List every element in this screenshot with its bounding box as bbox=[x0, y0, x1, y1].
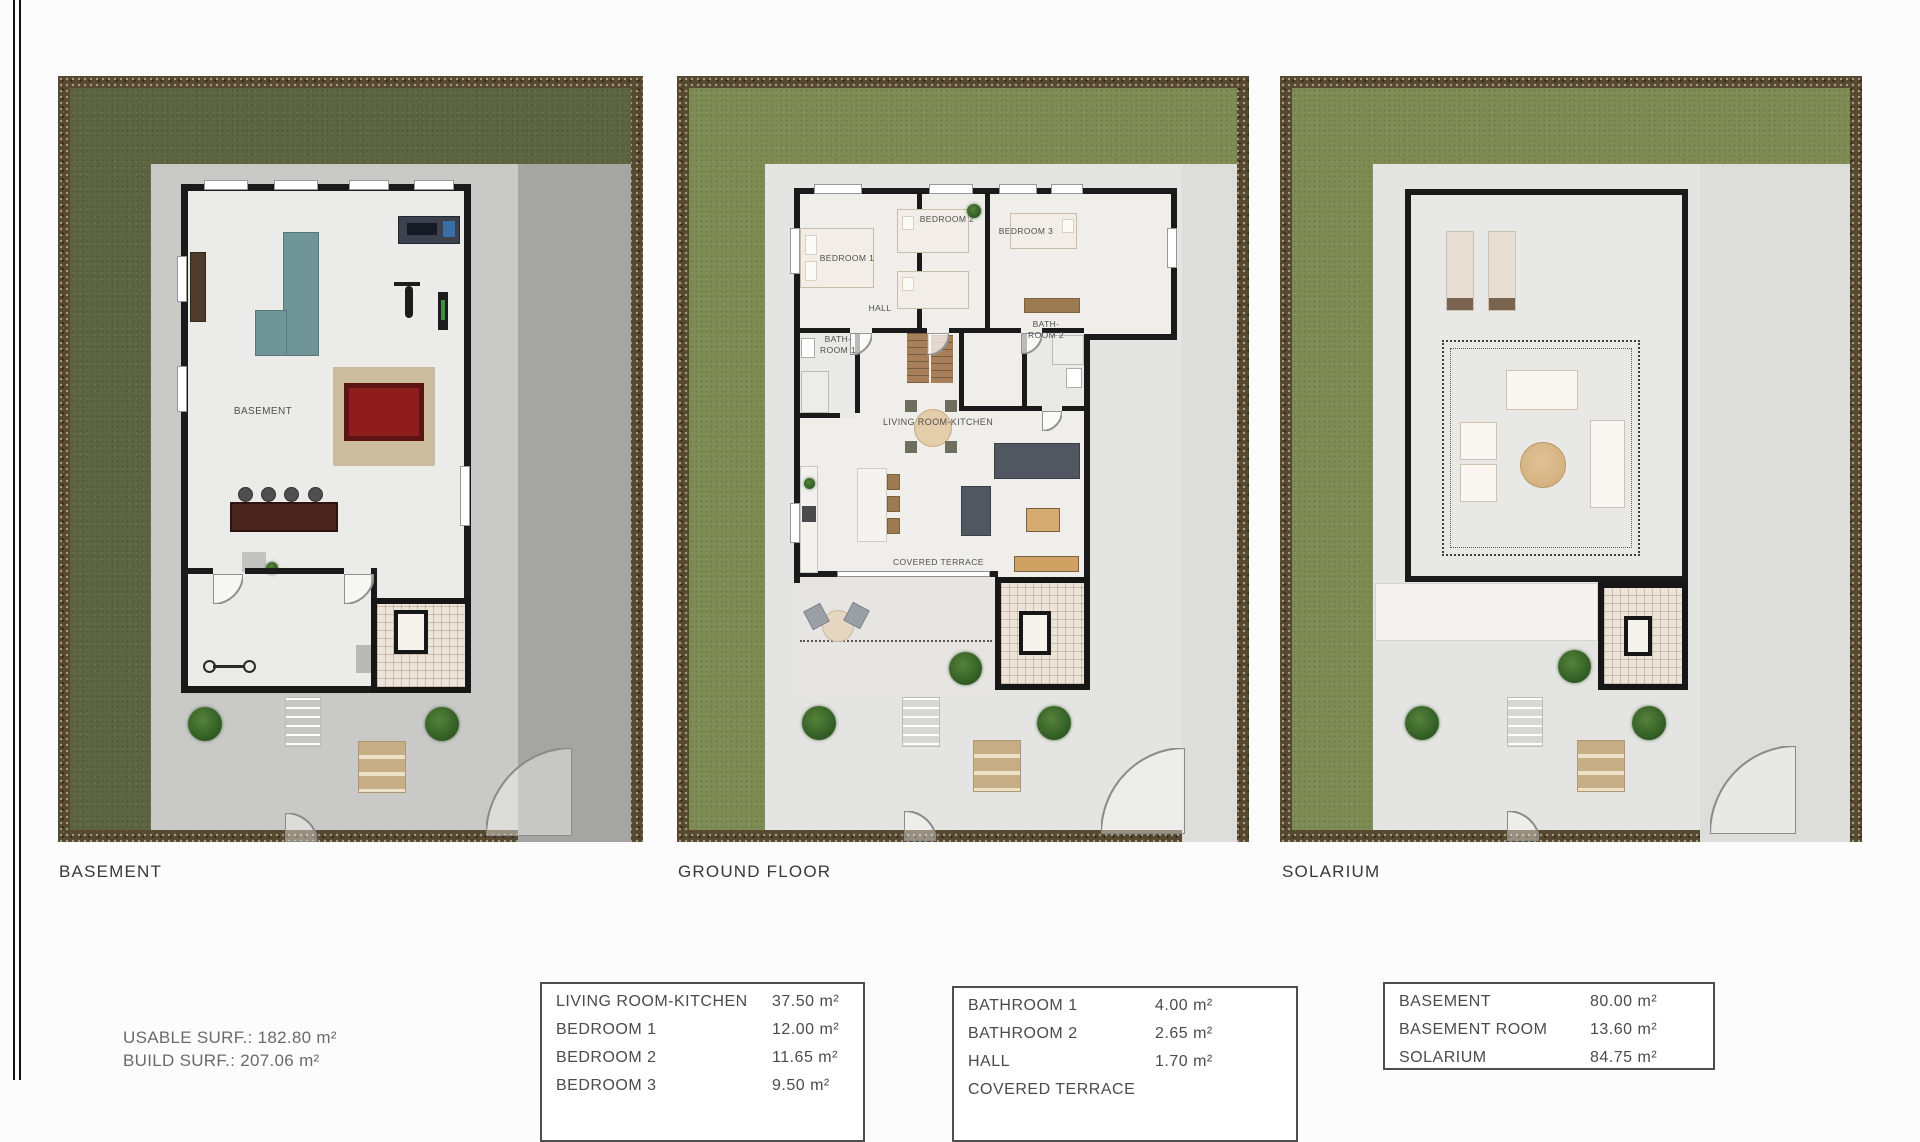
bar-stool bbox=[238, 487, 253, 502]
exterior-stairs bbox=[285, 697, 321, 747]
bush bbox=[188, 707, 222, 741]
interior-wall bbox=[1062, 406, 1084, 411]
room-label: COVERED TERRACE bbox=[968, 1081, 1135, 1098]
sun-lounger bbox=[1488, 231, 1516, 311]
exercise-bike bbox=[394, 280, 424, 324]
room-label-bedroom1: BEDROOM 1 bbox=[812, 253, 882, 264]
page-border-lines bbox=[13, 0, 21, 1080]
area-table-rooms: LIVING ROOM-KITCHEN37.50 m² BEDROOM 112.… bbox=[540, 982, 865, 1142]
door-arc bbox=[213, 574, 243, 604]
corner-sofa bbox=[283, 232, 319, 356]
table-row: HALL1.70 m² bbox=[954, 1048, 1296, 1076]
area-table-baths-hall: BATHROOM 14.00 m² BATHROOM 22.65 m² HALL… bbox=[952, 986, 1298, 1142]
floor-plan-solarium bbox=[1280, 76, 1862, 842]
plan-title-basement: BASEMENT bbox=[59, 862, 162, 882]
bar-counter bbox=[230, 502, 338, 532]
driveway-area bbox=[518, 164, 631, 842]
room-label-line: BATH- bbox=[1033, 319, 1060, 329]
gate-door-arc bbox=[1710, 746, 1796, 834]
stool bbox=[887, 474, 900, 490]
lounger-foot bbox=[1489, 298, 1515, 310]
pool-table bbox=[344, 383, 424, 441]
interior-wall bbox=[181, 568, 213, 574]
pedestrian-door-arc bbox=[1507, 811, 1539, 841]
bush bbox=[425, 707, 459, 741]
table-row: BASEMENT80.00 m² bbox=[1385, 988, 1713, 1016]
window bbox=[790, 503, 800, 543]
room-label-hall: HALL bbox=[862, 303, 898, 314]
surface-summary: USABLE SURF.: 182.80 m² BUILD SURF.: 207… bbox=[123, 1026, 337, 1072]
outdoor-armchair bbox=[1460, 464, 1497, 502]
room-label: LIVING ROOM-KITCHEN bbox=[556, 993, 748, 1010]
room-area-value: 2.65 m² bbox=[1155, 1020, 1213, 1048]
room-area-value: 84.75 m² bbox=[1590, 1044, 1657, 1070]
sliding-glass-door bbox=[837, 571, 990, 577]
window bbox=[929, 184, 973, 194]
room-label-basement: BASEMENT bbox=[208, 405, 318, 418]
room-label-terrace: COVERED TERRACE bbox=[893, 557, 983, 568]
bush bbox=[949, 652, 982, 685]
room-label-living: LIVING ROOM-KITCHEN bbox=[883, 417, 993, 429]
stool bbox=[887, 496, 900, 512]
stair-flight bbox=[907, 333, 929, 383]
table-row: BASEMENT ROOM13.60 m² bbox=[1385, 1016, 1713, 1044]
bike-body bbox=[405, 286, 413, 318]
bush bbox=[1037, 706, 1071, 740]
window bbox=[814, 184, 862, 194]
canopy-roof bbox=[1375, 583, 1598, 641]
build-surface-label: BUILD SURF.: bbox=[123, 1051, 235, 1070]
room-label: BASEMENT bbox=[1399, 993, 1491, 1010]
bush bbox=[802, 706, 836, 740]
door-arc bbox=[344, 574, 374, 604]
window bbox=[1167, 228, 1177, 268]
plan-title-solarium: SOLARIUM bbox=[1282, 862, 1380, 882]
pedestrian-door-arc bbox=[285, 813, 317, 842]
usable-surface-line: USABLE SURF.: 182.80 m² bbox=[123, 1026, 337, 1049]
walkway-area bbox=[1182, 164, 1237, 842]
single-bed bbox=[897, 271, 969, 309]
pillow bbox=[902, 277, 914, 291]
stool bbox=[887, 518, 900, 534]
window bbox=[177, 366, 187, 412]
room-area-value: 11.65 m² bbox=[772, 1044, 838, 1072]
bar-stool bbox=[284, 487, 299, 502]
terrace-dotted-line bbox=[800, 640, 992, 642]
wardrobe bbox=[1024, 298, 1080, 313]
tv-cabinet-box bbox=[443, 221, 455, 237]
sofa bbox=[994, 443, 1080, 479]
grass-area bbox=[1292, 164, 1373, 830]
sideboard bbox=[190, 252, 206, 322]
room-label-line: ROOM 2 bbox=[1028, 330, 1064, 340]
interior-wall bbox=[800, 328, 850, 333]
wood-pallet bbox=[358, 741, 406, 793]
window bbox=[274, 180, 318, 190]
build-surface-line: BUILD SURF.: 207.06 m² bbox=[123, 1049, 337, 1072]
table-row: BATHROOM 14.00 m² bbox=[954, 992, 1296, 1020]
bush bbox=[1405, 706, 1439, 740]
room-area-value: 13.60 m² bbox=[1590, 1016, 1657, 1044]
exterior-stairs bbox=[1507, 697, 1543, 747]
table-row: BEDROOM 211.65 m² bbox=[542, 1044, 863, 1072]
plan-title-ground-floor: GROUND FLOOR bbox=[678, 862, 831, 882]
interior-wall bbox=[964, 406, 1042, 411]
exterior-stairs bbox=[902, 697, 940, 747]
room-label-bedroom2: BEDROOM 2 bbox=[912, 214, 982, 225]
stove bbox=[802, 506, 816, 522]
room-area-value: 12.00 m² bbox=[772, 1016, 839, 1044]
room-label: BATHROOM 1 bbox=[968, 997, 1078, 1014]
window bbox=[790, 228, 800, 274]
room-area-value: 4.00 m² bbox=[1155, 992, 1213, 1020]
plant bbox=[804, 478, 815, 489]
window bbox=[414, 180, 454, 190]
grass-area bbox=[689, 88, 1237, 164]
stair-landing bbox=[394, 610, 428, 654]
dining-chair bbox=[905, 441, 917, 453]
wood-pallet bbox=[973, 740, 1021, 792]
room-label-line: BATH- bbox=[825, 334, 852, 344]
shower bbox=[801, 371, 829, 413]
table-row: BEDROOM 112.00 m² bbox=[542, 1016, 863, 1044]
gym-bench-pad bbox=[441, 300, 445, 320]
room-area-value: 1.70 m² bbox=[1155, 1048, 1213, 1076]
floor-plan-ground-floor: BEDROOM 1 BEDROOM 2 BEDROOM 3 HALL BATH-… bbox=[677, 76, 1249, 842]
usable-surface-value: 182.80 m² bbox=[258, 1028, 337, 1047]
exterior-wall bbox=[1090, 334, 1177, 340]
room-area-value: 37.50 m² bbox=[772, 988, 839, 1016]
lounger-foot bbox=[1447, 298, 1473, 310]
outdoor-sofa bbox=[1506, 370, 1578, 410]
room-label-bathroom1: BATH- ROOM 1 bbox=[817, 334, 859, 356]
table-row: BATHROOM 22.65 m² bbox=[954, 1020, 1296, 1048]
room-area-value: 9.50 m² bbox=[772, 1072, 830, 1100]
interior-wall bbox=[959, 333, 964, 411]
exterior-wall bbox=[1084, 334, 1090, 583]
build-surface-value: 207.06 m² bbox=[240, 1051, 319, 1070]
floor-plan-basement: BASEMENT bbox=[58, 76, 643, 842]
outdoor-armchair bbox=[1460, 422, 1497, 460]
window bbox=[204, 180, 248, 190]
table-row: COVERED TERRACE bbox=[954, 1076, 1296, 1104]
toilet bbox=[801, 338, 815, 358]
dining-chair bbox=[945, 441, 957, 453]
gate-door-arc bbox=[486, 748, 572, 836]
interior-wall bbox=[245, 568, 344, 574]
table-row: SOLARIUM84.75 m² bbox=[1385, 1044, 1713, 1070]
stair-landing bbox=[1019, 611, 1051, 655]
pillow bbox=[1062, 219, 1074, 233]
grass-area bbox=[70, 164, 151, 830]
area-table-basement-solarium: BASEMENT80.00 m² BASEMENT ROOM13.60 m² S… bbox=[1383, 982, 1715, 1070]
stair-landing bbox=[1624, 616, 1652, 656]
room-label-line: ROOM 1 bbox=[820, 345, 856, 355]
window bbox=[999, 184, 1037, 194]
wood-pallet bbox=[1577, 740, 1625, 792]
window bbox=[349, 180, 389, 190]
room-label-bedroom3: BEDROOM 3 bbox=[991, 226, 1061, 237]
table-row: BEDROOM 39.50 m² bbox=[542, 1072, 863, 1100]
room-label: BATHROOM 2 bbox=[968, 1025, 1078, 1042]
bush bbox=[1558, 650, 1591, 683]
dining-chair bbox=[945, 400, 957, 412]
room-label: BEDROOM 2 bbox=[556, 1049, 657, 1066]
grass-area bbox=[689, 164, 765, 830]
kitchen-island bbox=[857, 468, 887, 542]
window bbox=[460, 466, 470, 526]
outdoor-round-table bbox=[1520, 442, 1566, 488]
bicycle-frame bbox=[213, 665, 245, 668]
walkway-area bbox=[1700, 164, 1850, 842]
dining-chair bbox=[905, 400, 917, 412]
grass-area bbox=[1292, 88, 1850, 164]
room-label: BASEMENT ROOM bbox=[1399, 1021, 1547, 1038]
room-label: HALL bbox=[968, 1053, 1010, 1070]
door-arc bbox=[1042, 411, 1062, 431]
coffee-table bbox=[1026, 508, 1060, 532]
window bbox=[1051, 184, 1083, 194]
tv-bench bbox=[1014, 556, 1079, 572]
armchair bbox=[961, 486, 991, 536]
pedestrian-door-arc bbox=[904, 811, 936, 841]
gate-door-arc bbox=[1101, 748, 1185, 834]
bush bbox=[1632, 706, 1666, 740]
bar-stool bbox=[261, 487, 276, 502]
sun-lounger bbox=[1446, 231, 1474, 311]
bar-stool bbox=[308, 487, 323, 502]
toilet bbox=[1066, 368, 1082, 388]
interior-wall bbox=[800, 413, 840, 418]
interior-wall bbox=[985, 194, 990, 328]
pillow bbox=[805, 235, 817, 255]
outdoor-sofa bbox=[1590, 420, 1625, 508]
bicycle bbox=[203, 658, 257, 674]
window bbox=[177, 256, 187, 302]
corner-sofa bbox=[255, 310, 287, 356]
room-label: BEDROOM 1 bbox=[556, 1021, 657, 1038]
tv-screen bbox=[407, 223, 437, 235]
room-area-value: 80.00 m² bbox=[1590, 988, 1657, 1016]
table-row: LIVING ROOM-KITCHEN37.50 m² bbox=[542, 988, 863, 1016]
room-label-bathroom2: BATH- ROOM 2 bbox=[1025, 319, 1067, 341]
door-arc bbox=[927, 333, 949, 355]
grass-area bbox=[70, 88, 631, 164]
room-label: SOLARIUM bbox=[1399, 1049, 1487, 1066]
tv-unit bbox=[398, 216, 460, 244]
usable-surface-label: USABLE SURF.: bbox=[123, 1028, 253, 1047]
gym-bench bbox=[438, 292, 448, 330]
